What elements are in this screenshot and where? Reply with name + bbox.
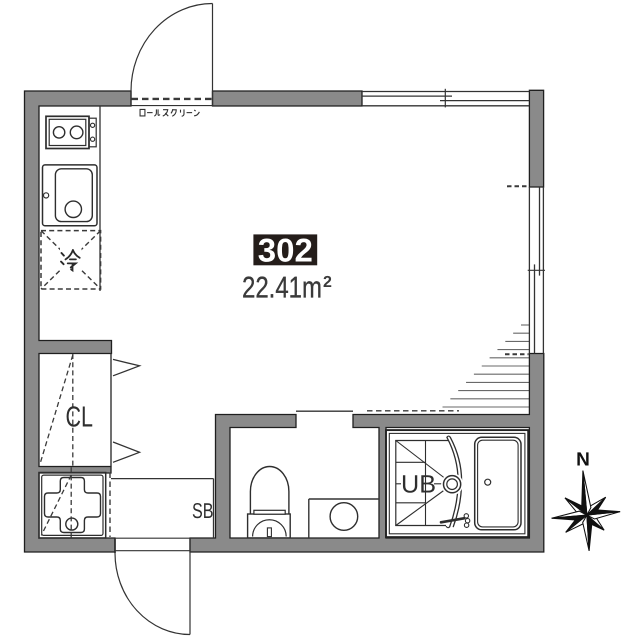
svg-text:302: 302 [258,232,313,269]
svg-text:SB: SB [192,499,214,523]
svg-text:CL: CL [66,401,94,433]
svg-text:N: N [576,450,590,471]
svg-text:22.41m: 22.41m [242,272,322,305]
svg-text:UB: UB [401,471,436,499]
svg-text:2: 2 [323,274,332,291]
